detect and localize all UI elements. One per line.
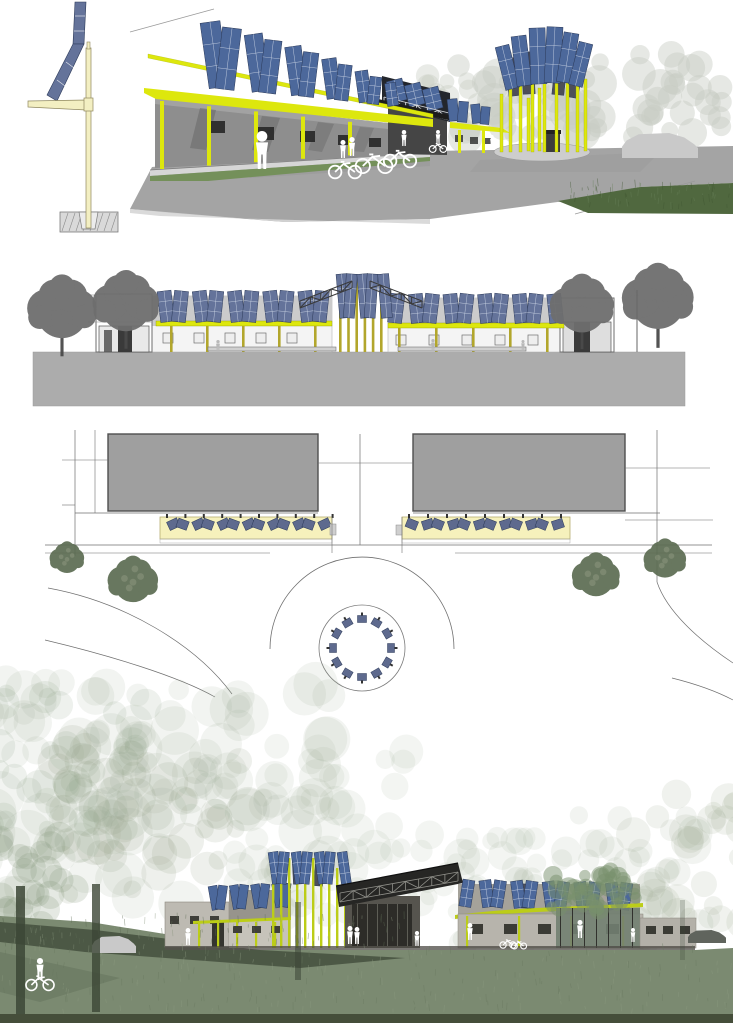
path-shape xyxy=(657,582,733,663)
tree-speckle xyxy=(669,553,675,559)
window xyxy=(287,333,297,343)
rect-shape xyxy=(312,858,314,948)
foliage-blob xyxy=(615,876,632,893)
solar-panel xyxy=(388,644,398,653)
foliage-blob xyxy=(691,871,717,897)
column xyxy=(503,514,505,518)
person-head xyxy=(355,927,360,932)
rect-shape xyxy=(208,347,336,351)
solar-panel xyxy=(371,615,384,628)
panel-post-tick xyxy=(361,681,363,684)
person-body xyxy=(490,139,494,147)
rect-shape xyxy=(352,904,412,946)
window xyxy=(646,926,656,934)
solar-panel-ring xyxy=(327,613,398,684)
tree-speckle xyxy=(59,554,64,559)
solar-panel-face xyxy=(382,657,393,668)
person-head xyxy=(468,923,473,928)
tree-canopy xyxy=(49,274,75,300)
tree-canopy xyxy=(645,263,672,290)
solar-panel-face xyxy=(371,618,382,629)
foliage-blob xyxy=(94,839,127,872)
tree-canopy xyxy=(136,299,159,322)
tree-speckle xyxy=(131,565,138,572)
foliage-blob xyxy=(707,905,733,932)
foliage-blob xyxy=(229,787,267,825)
solar-panel-face xyxy=(358,616,367,623)
solar-panel xyxy=(382,657,395,670)
rect-shape xyxy=(33,352,685,406)
foliage-blob xyxy=(264,763,287,786)
solar-panel-row xyxy=(200,21,399,107)
column xyxy=(584,908,585,948)
tree-canopy xyxy=(124,556,143,575)
tree-speckle xyxy=(664,547,670,553)
solar-panel xyxy=(358,613,367,623)
person-head xyxy=(340,140,345,145)
tree-speckle xyxy=(595,562,601,568)
solar-panel-row xyxy=(336,274,392,319)
foliage-blob xyxy=(570,806,588,824)
person-figure xyxy=(490,135,494,147)
foliage-blob xyxy=(391,750,415,774)
window xyxy=(252,926,261,933)
rect-shape xyxy=(87,42,90,49)
rect-shape xyxy=(388,323,564,328)
window xyxy=(663,926,673,934)
column xyxy=(560,514,562,518)
foliage-blob xyxy=(312,679,345,712)
tree-speckle xyxy=(70,553,75,558)
path-shape xyxy=(672,678,733,700)
rect-shape xyxy=(527,98,530,151)
rect-shape xyxy=(0,1014,733,1023)
rect-shape xyxy=(396,525,402,535)
foliage-blob xyxy=(12,858,37,883)
column xyxy=(484,514,486,518)
person-head xyxy=(216,340,219,343)
person-head xyxy=(436,130,440,134)
architectural-drawing-sheet xyxy=(0,0,733,1023)
rect-shape xyxy=(165,946,695,950)
column xyxy=(160,101,164,169)
foliage-blob xyxy=(71,744,99,772)
tree-canopy xyxy=(551,302,573,324)
column xyxy=(203,514,205,518)
rect-shape xyxy=(108,434,318,511)
foliage-blob xyxy=(440,74,455,89)
window xyxy=(538,924,551,934)
column xyxy=(301,117,305,159)
foliage-blob xyxy=(662,780,691,809)
rect-shape xyxy=(398,347,526,351)
foliage-blob xyxy=(708,106,731,129)
panel-post-tick xyxy=(327,647,330,649)
solar-panel-face xyxy=(457,101,468,122)
tree-canopy xyxy=(72,556,84,568)
solar-panel-face xyxy=(480,106,490,124)
foliage-blob xyxy=(708,75,733,100)
tree-speckle xyxy=(659,563,665,569)
solar-panel xyxy=(340,668,353,681)
pole-detail-drawing xyxy=(28,2,118,232)
rect-shape xyxy=(470,137,478,144)
window xyxy=(504,924,517,934)
foliage-blob xyxy=(190,852,224,886)
polygon-shape xyxy=(73,2,86,44)
panel-post-tick xyxy=(361,613,363,616)
column xyxy=(446,514,448,518)
rect-shape xyxy=(500,94,503,152)
solar-panel xyxy=(471,104,482,124)
tree-canopy xyxy=(72,305,95,328)
rect-shape xyxy=(295,902,301,980)
panel-post-tick xyxy=(395,647,398,649)
plan-tree xyxy=(644,538,687,577)
foliage-blob xyxy=(578,849,599,870)
polygon-shape xyxy=(47,44,84,101)
column xyxy=(407,904,408,946)
solar-panel xyxy=(171,290,188,322)
solar-panel-face xyxy=(388,644,395,653)
person-head xyxy=(347,926,352,931)
tree-speckle xyxy=(593,574,599,580)
window xyxy=(495,335,505,345)
window xyxy=(170,916,179,924)
tree-speckle xyxy=(662,558,668,564)
foliage-blob xyxy=(124,880,142,898)
foliage-blob xyxy=(223,710,254,741)
solar-panel xyxy=(329,657,342,670)
foliage-blob xyxy=(319,786,352,819)
solar-panel xyxy=(457,101,468,122)
person-head xyxy=(349,137,354,142)
foliage-blob xyxy=(168,680,188,700)
front-elevation-drawing xyxy=(27,263,693,406)
window xyxy=(225,333,235,343)
column xyxy=(572,908,573,948)
person-head xyxy=(37,958,43,964)
rect-shape xyxy=(402,539,570,543)
path-shape xyxy=(48,588,232,694)
foliage-blob xyxy=(48,753,69,774)
grass-blade xyxy=(162,928,163,934)
grass-blade xyxy=(308,933,309,939)
solar-panel xyxy=(277,290,294,322)
foliage-blob xyxy=(391,838,410,857)
column xyxy=(198,922,200,948)
grass-blade xyxy=(124,919,125,926)
solar-panel xyxy=(371,668,384,681)
rect-shape xyxy=(330,524,336,535)
tree-canopy xyxy=(28,306,51,329)
tree-canopy xyxy=(657,538,673,554)
foliage-blob xyxy=(301,789,319,807)
window xyxy=(528,335,538,345)
ellipse-shape xyxy=(494,143,590,161)
solar-panel xyxy=(242,290,259,322)
column xyxy=(207,106,211,165)
tree-canopy xyxy=(671,557,685,571)
tree-canopy xyxy=(603,573,619,589)
window xyxy=(396,335,406,345)
rect-shape xyxy=(92,884,100,1012)
foliage-blob xyxy=(546,902,557,913)
solar-panel-face xyxy=(332,657,343,668)
column xyxy=(408,514,410,518)
rect-shape xyxy=(86,48,91,228)
column xyxy=(313,514,315,518)
column xyxy=(258,514,260,518)
foliage-blob xyxy=(589,900,603,914)
foliage-blob xyxy=(558,877,580,899)
foliage-blob xyxy=(729,848,733,867)
tree-canopy xyxy=(623,295,647,319)
foliage-blob xyxy=(16,778,41,803)
foliage-blob xyxy=(42,865,67,890)
solar-panel xyxy=(358,674,367,684)
rect-shape xyxy=(104,330,112,352)
column xyxy=(240,514,242,518)
presentation-sheet xyxy=(0,0,733,1023)
perspective-rendering-bottom xyxy=(0,662,733,1023)
person-head xyxy=(415,931,419,935)
plan-tree xyxy=(50,541,85,573)
column xyxy=(377,904,378,946)
foliage-blob xyxy=(103,701,126,724)
solar-panel-face xyxy=(371,668,382,679)
rect-shape xyxy=(160,539,332,543)
person-head xyxy=(257,131,268,142)
tree-canopy xyxy=(592,302,614,324)
tree-speckle xyxy=(655,555,661,561)
foliage-blob xyxy=(44,822,74,852)
column xyxy=(184,514,186,518)
tree-canopy xyxy=(61,541,74,554)
column xyxy=(397,904,398,946)
solar-panel xyxy=(207,290,224,322)
foliage-blob xyxy=(669,814,703,848)
rect-shape xyxy=(288,858,290,948)
tree xyxy=(622,263,694,348)
tree-speckle xyxy=(66,548,71,553)
tree-speckle xyxy=(130,579,137,586)
person-head xyxy=(521,340,524,343)
plan-tree xyxy=(572,552,620,596)
rect-shape xyxy=(84,98,93,111)
solar-panel xyxy=(327,644,337,653)
rect-shape xyxy=(545,130,561,134)
solar-panel-face xyxy=(342,618,353,629)
window xyxy=(256,333,266,343)
foliage-blob xyxy=(264,734,289,759)
foliage-blob xyxy=(375,812,403,840)
polygon-shape xyxy=(28,100,86,110)
tree-canopy xyxy=(587,552,605,570)
column xyxy=(236,922,238,948)
foliage-blob xyxy=(142,835,177,870)
rect-shape xyxy=(413,434,625,511)
foliage-blob xyxy=(646,805,669,828)
column xyxy=(217,922,219,948)
column xyxy=(458,130,461,153)
foliage-blob xyxy=(655,859,679,883)
path-shape xyxy=(270,557,454,649)
tree-speckle xyxy=(585,571,591,577)
foliage-blob xyxy=(523,827,546,850)
foliage-blob xyxy=(646,886,681,921)
solar-panel xyxy=(382,626,395,639)
tree-canopy xyxy=(669,294,693,318)
plan-tree xyxy=(108,556,159,603)
column xyxy=(608,908,609,948)
site-plan-drawing xyxy=(45,430,733,700)
person-head xyxy=(631,928,635,932)
window xyxy=(233,926,242,933)
tree-speckle xyxy=(589,580,595,586)
tree xyxy=(27,274,96,356)
column xyxy=(522,514,524,518)
rect-shape xyxy=(210,121,225,133)
tree-speckle xyxy=(600,569,606,575)
foliage-blob xyxy=(686,51,713,78)
solar-panel-face xyxy=(471,104,482,124)
solar-panel xyxy=(340,615,353,628)
person-head xyxy=(490,135,493,138)
column xyxy=(170,326,173,352)
column xyxy=(387,904,388,946)
foliage-blob xyxy=(591,53,609,71)
foliage-blob xyxy=(590,881,606,897)
rect-shape xyxy=(484,138,491,144)
perspective-rendering-top xyxy=(130,9,733,224)
column xyxy=(295,514,297,518)
foliage-blob xyxy=(415,820,444,849)
rect-shape xyxy=(369,138,381,147)
solar-panel xyxy=(329,626,342,639)
solar-panel-face xyxy=(342,668,353,679)
foliage-blob xyxy=(136,752,157,773)
rect-shape xyxy=(584,79,587,151)
tree-canopy xyxy=(570,274,594,298)
solar-panel xyxy=(480,106,490,124)
foliage-blob xyxy=(488,841,517,870)
rect-shape xyxy=(336,868,338,948)
foliage-blob xyxy=(644,104,663,123)
column xyxy=(546,328,549,352)
foliage-blob xyxy=(45,691,74,720)
foliage-blob xyxy=(314,903,338,927)
solar-panel-face xyxy=(382,628,393,639)
tree-canopy xyxy=(141,578,158,595)
column xyxy=(427,514,429,518)
foliage-blob xyxy=(381,773,408,800)
tree-speckle xyxy=(62,561,67,566)
person-head xyxy=(431,339,434,342)
person-head xyxy=(402,130,406,134)
column xyxy=(482,130,485,153)
grass-blade xyxy=(302,937,303,944)
tree-canopy xyxy=(114,270,139,295)
solar-panel-face xyxy=(330,644,337,653)
rect-shape xyxy=(16,886,25,1018)
rect-shape xyxy=(538,88,541,151)
column xyxy=(620,908,621,948)
column xyxy=(465,514,467,518)
tree-speckle xyxy=(65,557,70,562)
foliage-blob xyxy=(622,57,656,91)
foliage-blob xyxy=(306,747,341,782)
foliage-blob xyxy=(458,72,476,90)
column xyxy=(367,904,368,946)
foliage-blob xyxy=(245,828,268,851)
column xyxy=(541,514,543,518)
foliage-blob xyxy=(226,748,252,774)
tree-canopy xyxy=(94,300,117,323)
column xyxy=(221,514,223,518)
foliage-blob xyxy=(616,817,651,852)
solar-panel-face xyxy=(332,628,343,639)
tree-speckle xyxy=(126,584,133,591)
person-head xyxy=(186,928,191,933)
grass-blade xyxy=(620,201,621,204)
column xyxy=(166,514,168,518)
window xyxy=(194,333,204,343)
window xyxy=(462,335,472,345)
foliage-blob xyxy=(669,73,683,87)
foliage-blob xyxy=(130,689,161,720)
rect-shape xyxy=(680,900,685,960)
foliage-blob xyxy=(610,898,623,911)
solar-panel-face xyxy=(358,674,367,681)
tree-speckle xyxy=(121,575,128,582)
tree-speckle xyxy=(137,573,144,580)
person-head xyxy=(577,920,582,925)
